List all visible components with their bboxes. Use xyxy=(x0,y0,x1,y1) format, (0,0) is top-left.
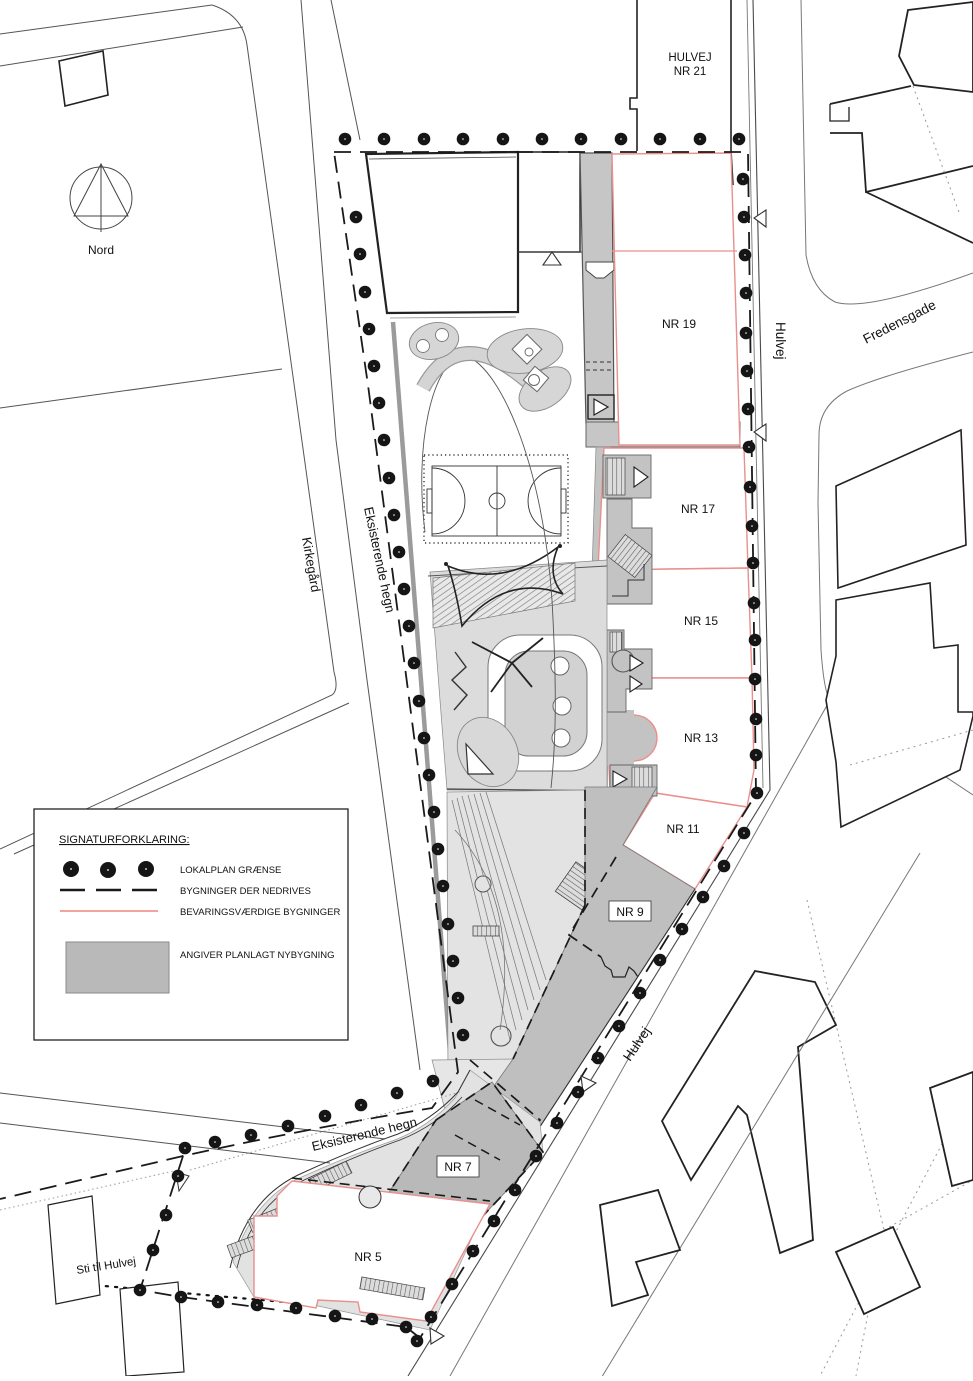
svg-text:NR 5: NR 5 xyxy=(354,1250,382,1264)
svg-text:NR 21: NR 21 xyxy=(674,66,707,78)
svg-text:NR 17: NR 17 xyxy=(681,502,715,516)
svg-text:BEVARINGSVÆRDIGE BYGNINGER: BEVARINGSVÆRDIGE BYGNINGER xyxy=(180,907,340,918)
svg-text:NR 9: NR 9 xyxy=(616,905,644,919)
svg-text:BYGNINGER DER NEDRIVES: BYGNINGER DER NEDRIVES xyxy=(180,886,311,897)
svg-text:NR 11: NR 11 xyxy=(666,822,699,836)
svg-text:NR 15: NR 15 xyxy=(684,614,718,628)
svg-text:SIGNATURFORKLARING:: SIGNATURFORKLARING: xyxy=(59,834,190,846)
svg-text:Nord: Nord xyxy=(88,243,114,257)
svg-text:HULVEJ: HULVEJ xyxy=(668,52,711,64)
svg-text:NR 19: NR 19 xyxy=(662,317,696,331)
svg-text:ANGIVER PLANLAGT NYBYGNING: ANGIVER PLANLAGT NYBYGNING xyxy=(180,950,335,961)
svg-text:NR 13: NR 13 xyxy=(684,731,718,745)
svg-text:NR 7: NR 7 xyxy=(444,1160,472,1174)
svg-text:LOKALPLAN GRÆNSE: LOKALPLAN GRÆNSE xyxy=(180,865,281,876)
svg-text:Hulvej: Hulvej xyxy=(773,322,788,360)
